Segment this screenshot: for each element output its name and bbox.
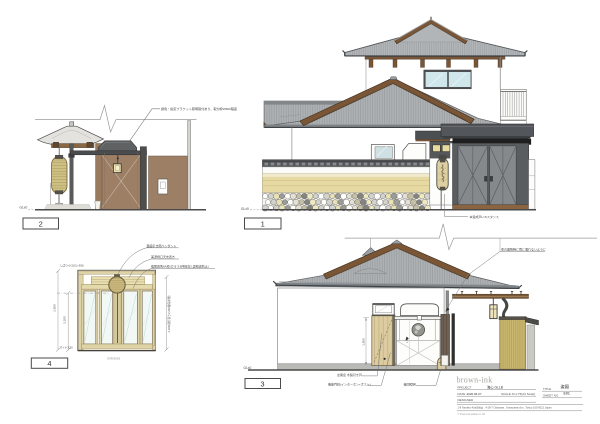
svg-text:しばり+0.5(GL+300): しばり+0.5(GL+300) [60,264,84,268]
svg-text:GL±0: GL±0 [20,206,28,210]
svg-text:GL±0: GL±0 [241,207,249,211]
svg-text:1: 1 [261,220,265,229]
svg-text:1,800: 1,800 [361,338,365,346]
svg-text:E01: E01 [564,391,570,395]
svg-text:TITLE: TITLE [543,387,551,391]
svg-text:車の乗降時に雨に濡れないように: 車の乗降時に雨に濡れないように [501,247,546,252]
svg-text:3: 3 [260,379,264,388]
svg-text:亜鉛引き雨ペンダント: 亜鉛引き雨ペンダント [147,243,177,248]
svg-text:調色・指定ブラケット照明取付あり、取付枠W600程度: 調色・指定ブラケット照明取付あり、取付枠W600程度 [161,106,237,111]
svg-text:海心 GLLB: 海心 GLLB [487,384,504,389]
svg-text:Entrance: Entrance [108,357,121,361]
svg-text:複層置色6A枠(ガラス9仲格高2,認輸送防止): 複層置色6A枠(ガラス9仲格高2,認輸送防止) [151,264,209,269]
svg-text:GL±0: GL±0 [244,366,252,370]
svg-text:DATE: DATE [458,392,466,396]
svg-text:1-8 Nanako-Kita(Bldg) , 4-28-7: 1-8 Nanako-Kita(Bldg) , 4-28-7 Odawara ,… [458,405,553,409]
svg-text:2,200: 2,200 [62,316,66,324]
svg-text:姿図: 姿図 [561,383,569,390]
svg-text:4: 4 [47,359,51,368]
svg-text:PROJECT: PROJECT [458,385,472,389]
svg-text:© brown-ink sekkei co.,ltd.: © brown-ink sekkei co.,ltd. [458,413,486,416]
svg-text:2,500: 2,500 [52,304,56,312]
svg-text:brown-ink: brown-ink [457,376,493,385]
svg-text:機能門柱(インターホン+ポスト): 機能門柱(インターホン+ポスト) [328,381,371,386]
svg-text:SHEET NO: SHEET NO [543,394,559,398]
svg-text:本造成戸L=Sスタンス: 本造成戸L=Sスタンス [470,214,499,219]
svg-text:2: 2 [39,220,43,229]
svg-text:美濃焼口天支置き: 美濃焼口天支置き [151,254,175,259]
svg-text:夜間照明: 夜間照明 [404,381,416,386]
svg-text:マイナス50: マイナス50 [60,345,74,349]
svg-text:DESIGNED: DESIGNED [458,398,475,402]
svg-text:2,200(通行高さ2,200確保詳細): 2,200(通行高さ2,200確保詳細) [167,296,171,333]
svg-text:SCALE S=1:75(A3 Scale): SCALE S=1:75(A3 Scale) [501,392,535,396]
svg-text:2020.06.07: 2020.06.07 [467,392,482,396]
svg-text:玄関扉 木製引き戸: 玄関扉 木製引き戸 [337,372,362,377]
